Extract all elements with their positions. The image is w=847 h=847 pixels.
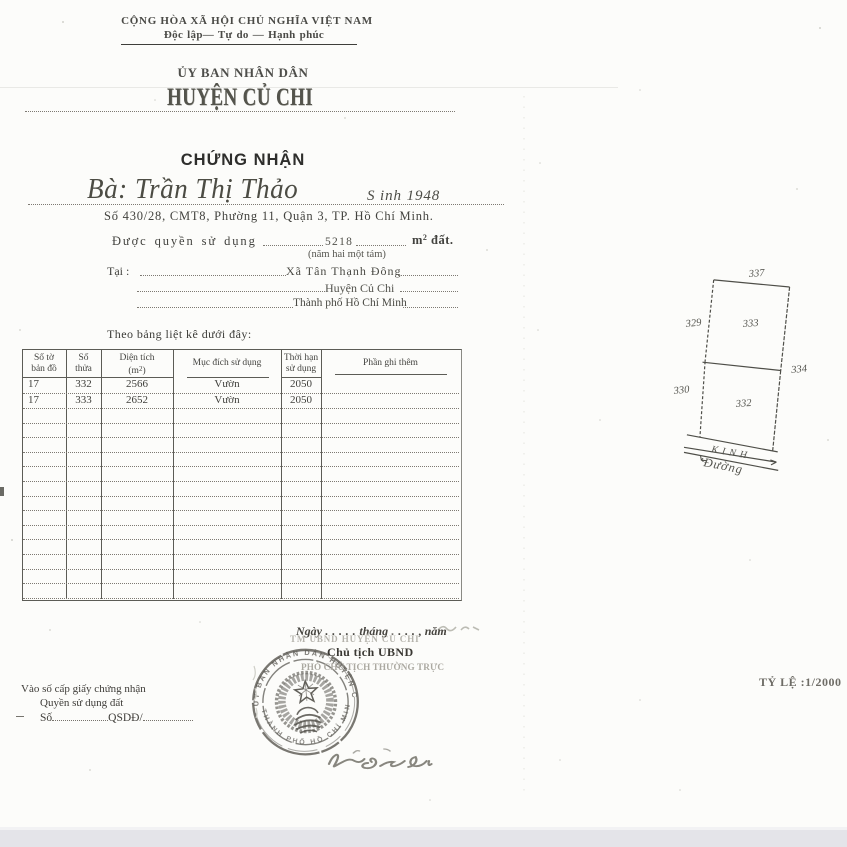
svg-text:332: 332 xyxy=(734,398,752,410)
svg-text:337: 337 xyxy=(747,268,765,280)
svg-text:334: 334 xyxy=(790,364,808,376)
svg-text:ỦY BAN NHÂN DÂN HUYỆN CỦ CHI: ỦY BAN NHÂN DÂN HUYỆN CỦ CHI xyxy=(0,0,360,731)
svg-text:333: 333 xyxy=(741,318,758,330)
svg-text:THÀNH PHỐ HỒ CHÍ MINH: THÀNH PHỐ HỒ CHÍ MINH xyxy=(0,0,356,773)
svg-text:329: 329 xyxy=(684,317,703,330)
svg-text:330: 330 xyxy=(672,384,691,397)
